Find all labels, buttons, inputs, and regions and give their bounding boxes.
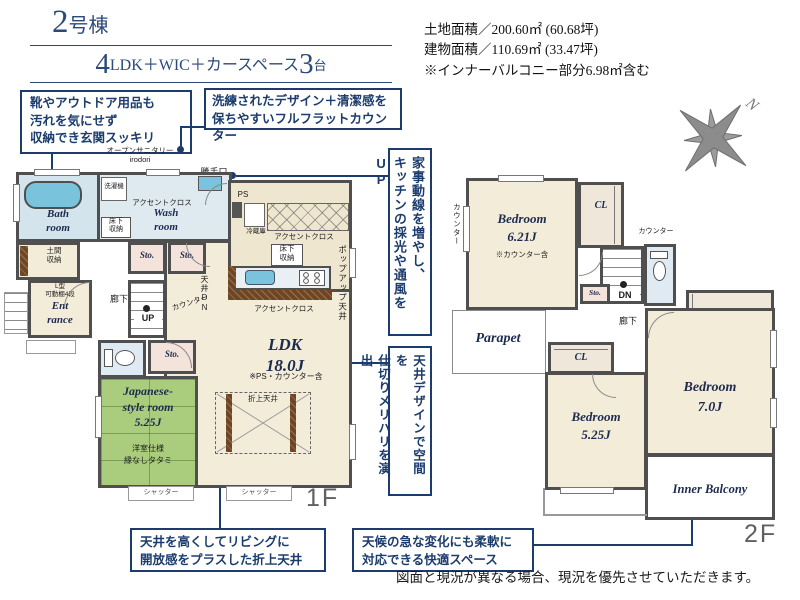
underfloor-storage-label: 床下 収納 [101, 217, 131, 238]
ldk-label: LDK 18.0J [237, 334, 333, 377]
japanese-room-note2: 縁なしタタミ [102, 456, 194, 466]
washer-label: 洗濯機 [99, 183, 129, 191]
japanese-room-note1: 洋室仕様 [102, 444, 194, 454]
stairs-dot [620, 281, 627, 288]
doma-shelf [20, 246, 28, 276]
connector-line [180, 126, 206, 128]
toilet-icon [115, 350, 135, 366]
hall-label-1f: 廊下 [100, 294, 138, 305]
cl-label: CL [548, 352, 614, 365]
bedroom-621-note: ※カウンター含 [470, 250, 574, 259]
toilet-icon [650, 251, 668, 259]
porch-step [26, 340, 76, 354]
parapet-label: Parapet [454, 330, 542, 348]
pipe-shaft [232, 202, 242, 218]
counter-side-label: カウンター [452, 192, 461, 256]
coffered-label: 折上天井 [225, 394, 301, 403]
toilet-icon [653, 261, 666, 281]
window [498, 175, 544, 182]
connector-line [236, 175, 388, 177]
window [770, 330, 777, 368]
layout-text: LDK＋WIC＋カースペース [110, 57, 299, 74]
disclaimer-text: 図面と現況が異なる場合、現況を優先させていただきます。 [396, 566, 759, 586]
inner-balcony-label: Inner Balcony [650, 482, 770, 498]
hanger-rail [554, 349, 608, 350]
unit-suffix: 号棟 [69, 15, 109, 37]
wash-room-label: Wash room [140, 207, 192, 235]
window [13, 184, 20, 222]
doma-label: 土間 収納 [32, 246, 76, 265]
bath-room-label: Bath room [20, 208, 96, 236]
sto-label: Sto. [580, 288, 610, 297]
dn-label: DN [610, 290, 640, 301]
window [34, 169, 80, 176]
ps-label: PS [231, 190, 255, 200]
callout-ceiling-zoning: 天井デザインで空間を 仕切りメリハリを演出 [388, 346, 432, 496]
unit-number: 2 [52, 4, 69, 40]
compass-icon: N [655, 78, 775, 188]
counter-wc-label: カウンター [632, 228, 680, 237]
callout-flat-counter: 洗練されたデザイン＋清潔感を 保ちやすいフルフラットカウンター [204, 88, 402, 130]
plan-summary: 4LDK＋WIC＋カースペース3台 [30, 48, 392, 81]
callout-coffered-ceiling: 天井を高くしてリビングに 開放感をプラスした折上天井 [130, 528, 326, 572]
kitchen-sink-icon [245, 270, 275, 285]
counter-edge [228, 266, 236, 300]
japanese-room-label: Japanese- style room 5.25J [100, 384, 196, 431]
floor-plan-page: 2号棟 4LDK＋WIC＋カースペース3台 土地面積／200.60㎡ (60.6… [0, 0, 800, 600]
area-note: ※インナーバルコニー部分6.98㎡含む [424, 61, 650, 81]
compass-north-label: N [742, 94, 763, 115]
land-area: 土地面積／200.60㎡ (60.68坪) [424, 20, 650, 40]
window [146, 169, 180, 176]
callout-housework-line: 家事動線を増やし、 キッチンの採光や通風をUP [388, 148, 432, 336]
underfloor-kitchen-label: 床下 収納 [271, 244, 303, 266]
ldk-note: ※PS・カウンター含 [232, 372, 340, 382]
page-title: 2号棟 [52, 4, 109, 41]
open-sanitary-label: オープンサニタリー irodori [88, 146, 192, 165]
car-unit: 台 [314, 58, 327, 73]
window [95, 396, 102, 438]
window [560, 487, 614, 494]
title-divider [30, 45, 392, 46]
title-divider-2 [30, 82, 392, 83]
roof-edge-line [543, 488, 545, 516]
sto-label: Sto. [128, 250, 166, 261]
hall-label-2f: 廊下 [608, 316, 648, 327]
closet-room [578, 182, 624, 248]
stairs-dot [143, 305, 150, 312]
bedroom-525-label: Bedroom 5.25J [553, 408, 639, 444]
roof-edge-line [543, 514, 647, 516]
window [463, 206, 470, 252]
refrigerator-icon [244, 203, 265, 227]
hanger-rail [614, 186, 615, 244]
accent-cross-wash-label: アクセントクロス [120, 198, 204, 207]
accent-cross-kitchen-label: アクセントクロス [260, 232, 348, 241]
toilet-icon [104, 349, 113, 367]
accent-cross-ldk-label: アクセントクロス [238, 304, 330, 313]
shutter-label: シャッター [226, 489, 292, 498]
building-area: 建物面積／110.69㎡ (33.47坪) [424, 40, 650, 60]
connector-line [534, 544, 693, 546]
car-count: 3 [299, 48, 314, 80]
bedroom-70-label: Bedroom 7.0J [663, 378, 757, 417]
counter-edge [228, 290, 332, 300]
shutter-label: シャッター [128, 489, 194, 498]
kitchen-cabinet [267, 203, 349, 231]
window [770, 398, 777, 428]
cl-label: CL [578, 200, 624, 213]
floor1-label: 1F [306, 484, 339, 513]
floor2-label: 2F [744, 520, 777, 549]
porch-step [4, 292, 28, 334]
callout-entrance-storage: 靴やアウトドア用品も 汚れを気にせず 収納でき玄関スッキリ [20, 90, 192, 154]
property-info: 土地面積／200.60㎡ (60.68坪) 建物面積／110.69㎡ (33.4… [424, 20, 650, 81]
connector-line [180, 126, 182, 148]
bedroom-621-label: Bedroom 6.21J [476, 210, 568, 245]
stove-icon [299, 270, 325, 286]
window [349, 248, 356, 278]
room-count: 4 [95, 48, 110, 80]
popup-ceiling-label: ポップアップ天井 [337, 240, 348, 326]
bathtub-icon [24, 181, 82, 209]
window [349, 424, 356, 460]
up-label: UP [134, 313, 162, 324]
